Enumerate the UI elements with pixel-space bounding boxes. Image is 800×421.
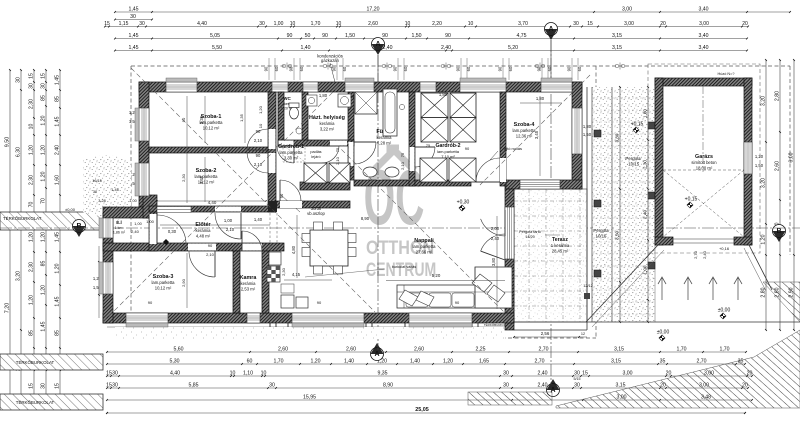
svg-text:1,45: 1,45 xyxy=(41,321,47,331)
svg-text:30: 30 xyxy=(139,21,145,27)
svg-text:1,40: 1,40 xyxy=(344,359,354,365)
svg-text:kerámia: kerámia xyxy=(196,228,212,233)
svg-text:90: 90 xyxy=(537,66,542,71)
svg-text:5,20: 5,20 xyxy=(508,45,518,51)
svg-text:4,80: 4,80 xyxy=(291,245,296,254)
svg-text:15,95: 15,95 xyxy=(303,395,316,401)
svg-text:3,20: 3,20 xyxy=(761,178,767,188)
svg-text:2,10: 2,10 xyxy=(400,161,405,170)
svg-text:27,66 m²: 27,66 m² xyxy=(416,250,433,255)
svg-text:3,15: 3,15 xyxy=(612,45,622,51)
svg-text:2,20: 2,20 xyxy=(432,21,442,27)
svg-text:60: 60 xyxy=(403,66,408,71)
svg-text:90: 90 xyxy=(289,66,294,71)
svg-text:10,12 m²: 10,12 m² xyxy=(155,286,172,291)
svg-text:75: 75 xyxy=(426,143,431,148)
svg-text:25,05: 25,05 xyxy=(415,407,429,413)
svg-text:1,70: 1,70 xyxy=(311,21,321,27)
svg-text:2,10: 2,10 xyxy=(335,156,340,165)
svg-text:1,80: 1,80 xyxy=(439,92,448,97)
svg-text:2,60: 2,60 xyxy=(414,347,424,353)
svg-text:1,45: 1,45 xyxy=(111,188,118,192)
svg-text:1,70: 1,70 xyxy=(719,347,729,353)
svg-text:1,00: 1,00 xyxy=(129,199,136,203)
svg-text:1,80: 1,80 xyxy=(643,109,648,118)
svg-text:2,80: 2,80 xyxy=(761,287,767,297)
svg-text:3,20: 3,20 xyxy=(761,96,767,106)
svg-text:10: 10 xyxy=(405,21,411,27)
svg-text:1,45: 1,45 xyxy=(128,33,138,39)
svg-text:20: 20 xyxy=(742,21,748,27)
svg-text:4,40: 4,40 xyxy=(197,21,207,27)
svg-text:1,35: 1,35 xyxy=(239,113,244,122)
svg-text:1,80: 1,80 xyxy=(319,93,328,98)
svg-text:2,70: 2,70 xyxy=(538,347,548,353)
svg-text:2,60: 2,60 xyxy=(278,347,288,353)
svg-text:85: 85 xyxy=(41,95,47,101)
svg-text:vb.oszlop: vb.oszlop xyxy=(307,211,325,216)
svg-text:1,65: 1,65 xyxy=(479,359,489,365)
svg-text:6,28 m²: 6,28 m² xyxy=(377,141,392,146)
svg-text:2,40: 2,40 xyxy=(55,145,61,155)
svg-text:1,15: 1,15 xyxy=(119,21,129,27)
svg-text:75: 75 xyxy=(400,152,405,157)
svg-text:1,40: 1,40 xyxy=(410,359,420,365)
svg-text:90: 90 xyxy=(456,66,461,71)
svg-text:70: 70 xyxy=(29,202,35,208)
svg-text:2,90: 2,90 xyxy=(181,278,186,287)
svg-text:10,12 m²: 10,12 m² xyxy=(203,126,220,131)
svg-text:90: 90 xyxy=(317,300,322,305)
svg-text:14/20: 14/20 xyxy=(525,235,535,239)
svg-text:35: 35 xyxy=(660,359,666,365)
svg-text:2,40: 2,40 xyxy=(441,45,451,51)
svg-text:2,40: 2,40 xyxy=(131,229,140,234)
svg-text:15: 15 xyxy=(29,383,35,389)
svg-text:30: 30 xyxy=(112,383,118,389)
svg-text:1,20: 1,20 xyxy=(41,115,47,125)
svg-text:4,48 m²: 4,48 m² xyxy=(196,234,211,239)
svg-text:3,20: 3,20 xyxy=(16,271,22,281)
svg-text:3,00: 3,00 xyxy=(622,371,632,377)
svg-text:90: 90 xyxy=(455,300,460,305)
svg-text:3,00: 3,00 xyxy=(624,21,634,27)
svg-text:30: 30 xyxy=(29,83,35,89)
svg-text:1,10: 1,10 xyxy=(243,371,253,377)
svg-text:90: 90 xyxy=(287,33,293,39)
svg-text:30: 30 xyxy=(16,77,22,83)
svg-text:3,80: 3,80 xyxy=(491,257,496,266)
svg-text:1,80: 1,80 xyxy=(583,124,592,129)
svg-text:2,25: 2,25 xyxy=(475,347,485,353)
svg-text:1,20: 1,20 xyxy=(41,285,47,295)
svg-text:90: 90 xyxy=(332,66,337,71)
svg-text:3,15: 3,15 xyxy=(614,347,624,353)
svg-text:1,40: 1,40 xyxy=(254,217,263,222)
svg-text:85: 85 xyxy=(55,330,61,336)
svg-text:2,30: 2,30 xyxy=(281,267,286,276)
svg-text:3,80: 3,80 xyxy=(615,133,620,142)
svg-text:5,50: 5,50 xyxy=(212,45,222,51)
svg-text:+0,15: +0,15 xyxy=(631,122,644,128)
svg-text:60: 60 xyxy=(577,66,582,71)
svg-text:3,50: 3,50 xyxy=(615,231,620,240)
svg-text:1,20: 1,20 xyxy=(310,359,320,365)
svg-text:60: 60 xyxy=(247,359,253,365)
svg-text:10: 10 xyxy=(230,371,236,377)
svg-text:1,20: 1,20 xyxy=(29,232,35,242)
svg-text:90: 90 xyxy=(465,146,470,151)
svg-text:5,30: 5,30 xyxy=(169,359,179,365)
svg-text:2,10: 2,10 xyxy=(206,252,215,257)
svg-text:3,00: 3,00 xyxy=(699,21,709,27)
svg-text:WC: WC xyxy=(283,96,291,101)
svg-text:1,20: 1,20 xyxy=(258,105,263,114)
svg-text:2,60: 2,60 xyxy=(368,21,378,27)
svg-text:+0,16: +0,16 xyxy=(719,246,730,251)
svg-text:3,00: 3,00 xyxy=(622,7,632,13)
svg-text:2,30: 2,30 xyxy=(29,262,35,272)
svg-text:60: 60 xyxy=(299,66,304,71)
svg-text:2,10: 2,10 xyxy=(254,162,263,167)
svg-text:1,50: 1,50 xyxy=(411,33,421,39)
svg-text:5/15: 5/15 xyxy=(574,377,581,381)
svg-text:+0,30: +0,30 xyxy=(457,200,470,206)
svg-text:90: 90 xyxy=(181,117,186,122)
svg-text:28,45 m²: 28,45 m² xyxy=(552,249,569,254)
svg-text:2,40: 2,40 xyxy=(537,383,547,389)
svg-text:3,40: 3,40 xyxy=(698,33,708,39)
svg-text:2,10: 2,10 xyxy=(254,138,263,143)
svg-text:17,20: 17,20 xyxy=(367,7,380,13)
svg-text:60: 60 xyxy=(547,66,552,71)
svg-text:kerámia: kerámia xyxy=(320,121,336,126)
svg-text:30: 30 xyxy=(269,383,275,389)
svg-text:90: 90 xyxy=(256,129,261,134)
svg-text:30: 30 xyxy=(130,14,136,20)
svg-text:90: 90 xyxy=(382,33,388,39)
svg-text:ajtó nyílás: ajtó nyílás xyxy=(504,146,522,151)
svg-text:1,45: 1,45 xyxy=(55,232,61,242)
svg-text:5,85: 5,85 xyxy=(188,383,198,389)
svg-text:10: 10 xyxy=(261,371,267,377)
svg-text:1,00: 1,00 xyxy=(274,21,284,27)
svg-text:1,00: 1,00 xyxy=(224,218,233,223)
svg-text:60: 60 xyxy=(466,66,471,71)
svg-text:1,40: 1,40 xyxy=(300,45,310,51)
svg-text:90: 90 xyxy=(567,66,572,71)
svg-text:2,56: 2,56 xyxy=(541,331,550,336)
svg-text:85: 85 xyxy=(29,330,35,336)
svg-text:8,90: 8,90 xyxy=(361,216,370,221)
svg-text:2,70: 2,70 xyxy=(696,359,706,365)
svg-text:2,70: 2,70 xyxy=(693,250,698,259)
svg-text:3,28: 3,28 xyxy=(98,199,105,203)
svg-text:-10/15: -10/15 xyxy=(627,162,640,167)
svg-text:1,50: 1,50 xyxy=(345,33,355,39)
svg-text:10: 10 xyxy=(290,21,296,27)
svg-text:3,70: 3,70 xyxy=(518,21,528,27)
svg-text:1,70: 1,70 xyxy=(676,347,686,353)
svg-text:1,80: 1,80 xyxy=(536,96,545,101)
svg-text:90: 90 xyxy=(279,193,284,198)
svg-text:M: M xyxy=(350,94,353,99)
svg-text:2,40: 2,40 xyxy=(702,250,707,259)
svg-text:70: 70 xyxy=(41,198,47,204)
svg-text:90: 90 xyxy=(498,66,503,71)
svg-text:2,30: 2,30 xyxy=(29,99,35,109)
svg-text:5,20: 5,20 xyxy=(432,273,441,278)
svg-text:8,90: 8,90 xyxy=(383,383,393,389)
svg-text:lejáró: lejáró xyxy=(311,155,320,159)
svg-text:20: 20 xyxy=(660,21,666,27)
svg-text:1 ker.: 1 ker. xyxy=(115,226,124,230)
svg-text:2,80: 2,80 xyxy=(775,91,781,101)
svg-text:2,40: 2,40 xyxy=(537,371,547,377)
svg-text:lam.parketta: lam.parketta xyxy=(412,244,436,249)
svg-text:Pergola tartó: Pergola tartó xyxy=(519,230,541,234)
svg-text:3,15: 3,15 xyxy=(611,359,621,365)
svg-text:simított beton: simított beton xyxy=(691,160,717,165)
svg-text:1,20: 1,20 xyxy=(41,145,47,155)
svg-text:9,35: 9,35 xyxy=(377,371,387,377)
svg-text:12: 12 xyxy=(581,332,585,336)
svg-text:4,40: 4,40 xyxy=(170,371,180,377)
svg-text:1,20: 1,20 xyxy=(41,171,47,181)
svg-text:7,20: 7,20 xyxy=(5,303,11,314)
svg-text:15: 15 xyxy=(104,21,110,27)
svg-text:Húzó N=?: Húzó N=? xyxy=(718,72,735,76)
svg-text:6,30: 6,30 xyxy=(16,147,22,157)
svg-text:85: 85 xyxy=(41,261,47,267)
svg-text:Pergola: Pergola xyxy=(625,156,641,161)
svg-text:15: 15 xyxy=(582,371,588,377)
svg-text:4,15: 4,15 xyxy=(292,272,301,277)
svg-text:10: 10 xyxy=(29,124,35,130)
svg-text:1,20: 1,20 xyxy=(29,295,35,305)
svg-text:30: 30 xyxy=(41,383,47,389)
svg-text:20: 20 xyxy=(666,371,672,377)
svg-text:1,45: 1,45 xyxy=(55,75,61,85)
svg-text:1,20: 1,20 xyxy=(443,359,453,365)
svg-text:60: 60 xyxy=(508,66,513,71)
svg-text:90: 90 xyxy=(256,153,261,158)
svg-text:2,30: 2,30 xyxy=(643,160,648,169)
svg-text:1,45: 1,45 xyxy=(55,296,61,306)
svg-text:2,30: 2,30 xyxy=(181,173,186,182)
svg-text:1,00: 1,00 xyxy=(146,219,155,224)
svg-text:±0,00: ±0,00 xyxy=(65,207,76,212)
svg-text:kerámia: kerámia xyxy=(241,281,257,286)
svg-text:1,00: 1,00 xyxy=(134,222,141,226)
svg-text:2,53 m²: 2,53 m² xyxy=(241,287,256,292)
svg-text:±0,00: ±0,00 xyxy=(657,330,670,336)
svg-text:15: 15 xyxy=(106,371,112,377)
svg-text:90: 90 xyxy=(322,33,328,39)
svg-text:15: 15 xyxy=(55,383,61,389)
svg-text:10/15: 10/15 xyxy=(596,234,608,239)
svg-text:1,20: 1,20 xyxy=(41,232,47,242)
svg-text:3,35: 3,35 xyxy=(199,115,204,124)
svg-text:30: 30 xyxy=(93,190,97,194)
svg-text:90: 90 xyxy=(264,66,269,71)
svg-text:1,50: 1,50 xyxy=(583,132,592,137)
svg-text:75: 75 xyxy=(335,147,340,152)
svg-text:3,40: 3,40 xyxy=(698,45,708,51)
svg-text:1,20: 1,20 xyxy=(755,154,764,159)
svg-text:90: 90 xyxy=(445,33,451,39)
svg-text:16/15: 16/15 xyxy=(92,179,102,183)
svg-text:1,60: 1,60 xyxy=(55,175,61,185)
svg-text:10: 10 xyxy=(258,123,263,128)
svg-text:TÉRKŐBURKOLAT: TÉRKŐBURKOLAT xyxy=(16,360,55,365)
svg-text:1,70: 1,70 xyxy=(273,359,283,365)
svg-text:+0,15: +0,15 xyxy=(685,197,698,203)
svg-text:30: 30 xyxy=(573,21,579,27)
svg-text:30: 30 xyxy=(503,371,509,377)
svg-text:1,20: 1,20 xyxy=(29,145,35,155)
svg-text:5,05: 5,05 xyxy=(210,33,220,39)
svg-text:1,86 m²: 1,86 m² xyxy=(113,231,126,235)
svg-text:2,10: 2,10 xyxy=(226,227,235,232)
svg-text:5,60: 5,60 xyxy=(173,347,183,353)
svg-text:1,50: 1,50 xyxy=(755,163,764,168)
svg-text:1,00: 1,00 xyxy=(643,265,648,274)
svg-text:85: 85 xyxy=(55,96,61,102)
svg-text:30: 30 xyxy=(41,83,47,89)
svg-text:1,45: 1,45 xyxy=(55,116,61,126)
svg-text:padlás: padlás xyxy=(310,150,321,154)
svg-text:30: 30 xyxy=(503,383,509,389)
svg-text:3,15: 3,15 xyxy=(612,33,622,39)
svg-text:TÉRKŐBURKOLAT: TÉRKŐBURKOLAT xyxy=(3,216,42,221)
svg-text:2,60: 2,60 xyxy=(775,161,781,171)
svg-text:É.l: É.l xyxy=(116,218,122,225)
svg-text:15: 15 xyxy=(106,383,112,389)
svg-text:15: 15 xyxy=(587,21,593,27)
svg-text:30: 30 xyxy=(574,371,580,377)
svg-text:2,70: 2,70 xyxy=(534,359,544,365)
svg-text:3,22 m²: 3,22 m² xyxy=(320,127,335,132)
svg-text:2,60: 2,60 xyxy=(346,347,356,353)
svg-text:2,00: 2,00 xyxy=(491,226,500,231)
svg-text:3,35: 3,35 xyxy=(199,175,204,184)
svg-text:50: 50 xyxy=(305,33,311,39)
svg-text:1 kerámia: 1 kerámia xyxy=(551,243,570,248)
svg-text:1,45: 1,45 xyxy=(128,45,138,51)
svg-text:12/12: 12/12 xyxy=(583,284,593,288)
svg-text:1,45: 1,45 xyxy=(128,7,138,13)
svg-text:2,40: 2,40 xyxy=(491,236,500,241)
svg-text:15: 15 xyxy=(29,73,35,79)
svg-text:1,20: 1,20 xyxy=(761,234,767,244)
svg-text:90: 90 xyxy=(393,66,398,71)
svg-text:3,15: 3,15 xyxy=(615,383,625,389)
svg-text:90: 90 xyxy=(148,300,153,305)
svg-text:12,36 m²: 12,36 m² xyxy=(516,134,533,139)
svg-text:9,50: 9,50 xyxy=(5,137,11,148)
svg-text:2,30: 2,30 xyxy=(29,175,35,185)
svg-text:3,45: 3,45 xyxy=(534,130,539,139)
svg-text:15: 15 xyxy=(41,73,47,79)
svg-text:60: 60 xyxy=(274,66,279,71)
svg-text:30: 30 xyxy=(112,371,118,377)
svg-text:1,20: 1,20 xyxy=(55,263,61,273)
svg-text:30: 30 xyxy=(259,21,265,27)
svg-text:10: 10 xyxy=(468,21,474,27)
svg-text:60: 60 xyxy=(342,66,347,71)
svg-text:±0,00: ±0,00 xyxy=(718,308,731,314)
svg-text:burkolat váltás: burkolat váltás xyxy=(392,265,417,269)
svg-text:3,40: 3,40 xyxy=(698,7,708,13)
svg-text:lam.parketta: lam.parketta xyxy=(151,280,175,285)
svg-text:3,30 m²: 3,30 m² xyxy=(284,156,299,161)
svg-text:90: 90 xyxy=(208,243,213,248)
svg-text:0,30: 0,30 xyxy=(168,229,177,234)
svg-text:30: 30 xyxy=(574,383,580,389)
svg-text:6,00: 6,00 xyxy=(789,152,795,162)
svg-text:TÉRKŐBURKOLAT: TÉRKŐBURKOLAT xyxy=(16,400,55,405)
svg-text:2,40: 2,40 xyxy=(643,210,648,219)
svg-text:4,75: 4,75 xyxy=(516,33,526,39)
svg-text:10: 10 xyxy=(336,21,342,27)
svg-text:Pergola: Pergola xyxy=(593,228,609,233)
